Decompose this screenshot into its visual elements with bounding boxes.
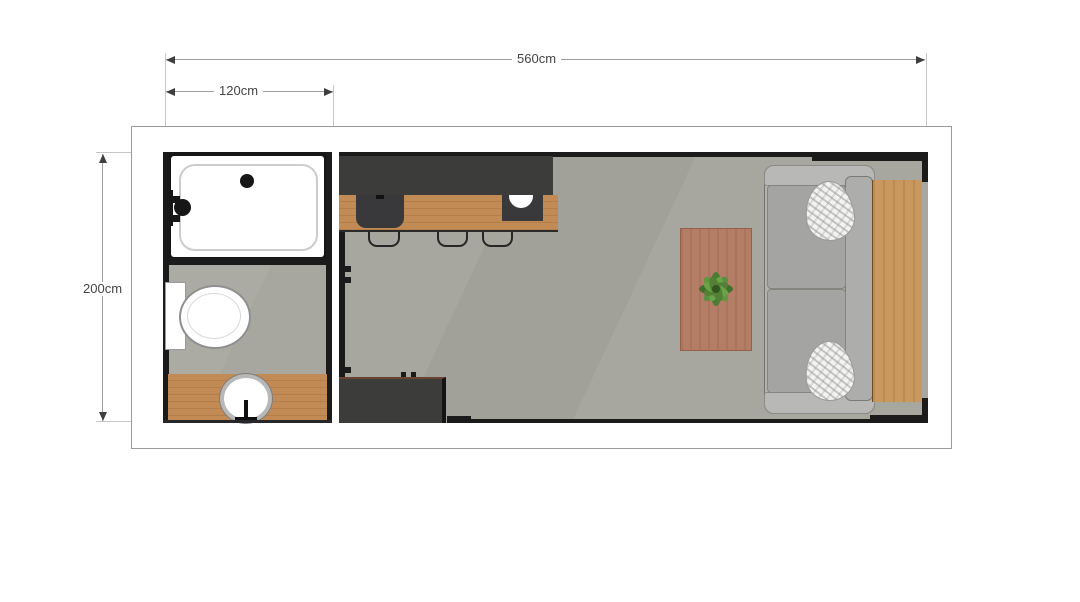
storage-hinge-icon [401, 372, 406, 377]
main-bottom-wall-thick [447, 416, 471, 423]
bathroom-divider-wall [163, 258, 332, 265]
toilet-seat-rim [187, 293, 241, 339]
bar-stool [437, 232, 468, 247]
main-right-wall [922, 152, 928, 182]
main-bottom-wall-thick [870, 415, 928, 423]
interior-floor [163, 152, 928, 423]
dimension-label-bathroom-width: 120cm [214, 84, 263, 98]
tub-drain-icon [240, 174, 254, 188]
door-jamb-icon [345, 367, 351, 373]
bar-stool [368, 232, 400, 247]
bathroom-bottom-wall [163, 420, 332, 423]
door-jamb-icon [345, 277, 351, 283]
arrowhead-icon [916, 56, 925, 64]
door-jamb-icon [345, 266, 351, 272]
arrowhead-icon [324, 88, 333, 96]
kitchen-sink-faucet-icon [376, 195, 384, 199]
storage-hinge-icon [411, 372, 416, 377]
partition-wall-core [332, 152, 339, 423]
extension-line-top [96, 152, 133, 153]
dimension-label-depth: 200cm [78, 282, 127, 296]
floor-plan-canvas: 560cm 120cm 200cm [0, 0, 1080, 602]
potted-plant-icon [694, 267, 738, 311]
arrowhead-icon [99, 154, 107, 163]
wood-platform [872, 180, 922, 402]
bathroom [163, 152, 332, 423]
main-bottom-wall [447, 419, 928, 423]
tub-faucet-icon [174, 199, 191, 216]
arrowhead-icon [99, 412, 107, 421]
arrowhead-icon [166, 56, 175, 64]
dimension-label-total-width: 560cm [512, 52, 561, 66]
arrowhead-icon [166, 88, 175, 96]
main-room [339, 152, 928, 423]
main-top-wall-thick [812, 152, 928, 161]
kitchen-sink [356, 195, 404, 228]
storage-unit [339, 377, 446, 423]
kitchen-upper-unit [339, 156, 553, 195]
bathtub-zone [163, 152, 332, 264]
bar-stool [482, 232, 513, 247]
extension-line-bottom [96, 421, 133, 422]
